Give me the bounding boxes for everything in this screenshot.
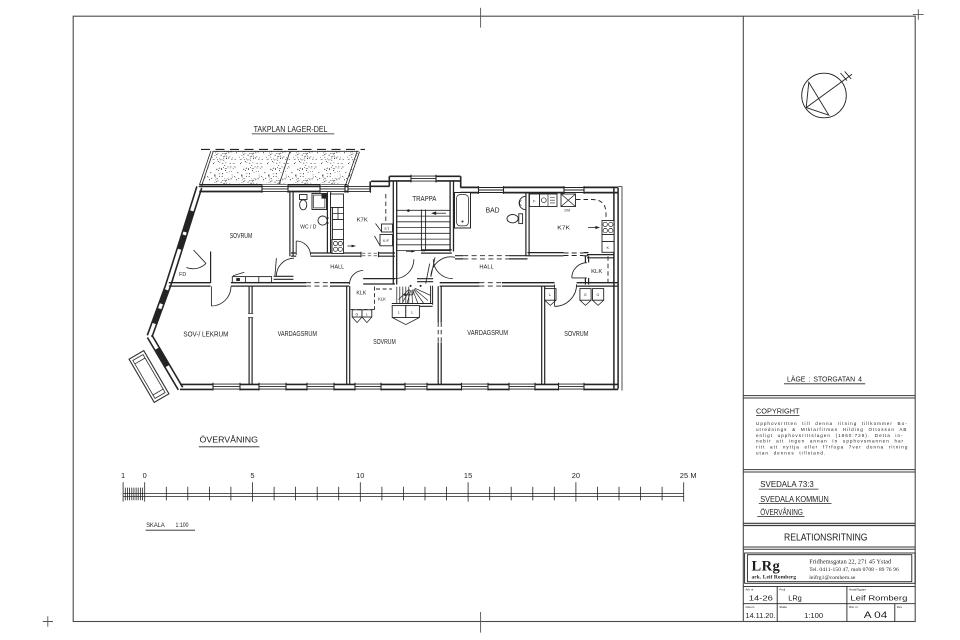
svg-text:20: 20 [572,471,580,480]
svg-text:RELATIONSRITNING: RELATIONSRITNING [784,532,868,543]
svg-text:HALL: HALL [330,264,344,270]
svg-text:KLK: KLK [591,269,603,275]
svg-text:Tel. 0411-150 47, mob 0708 - 8: Tel. 0411-150 47, mob 0708 - 89 76 96 [809,567,899,573]
svg-text:UpphovsrItten till denna ritni: UpphovsrItten till denna ritning tillkom… [756,421,908,426]
svg-text:Fridhemsgatan 22, 271 45 Ysta: Fridhemsgatan 22, 271 45 Ystad [809,559,892,566]
svg-text:K7K: K7K [357,218,368,224]
svg-text:K7K: K7K [557,225,570,231]
svg-text:Datum: Datum [746,605,755,609]
svg-text:ST: ST [384,227,390,231]
svg-text:10: 10 [356,471,364,480]
svg-text:nebIr att ingen annan In uppho: nebIr att ingen annan In upphovsmannen h… [756,439,904,444]
svg-text:25 M: 25 M [680,471,697,480]
svg-text:Skala: Skala [779,605,787,609]
svg-text:VARDAGSRUM: VARDAGSRUM [278,331,318,338]
svg-text:VARDAGSRUM: VARDAGSRUM [467,330,508,337]
svg-text:KLK: KLK [378,296,386,301]
svg-text:WC / D: WC / D [300,225,316,231]
svg-text:G: G [584,293,587,297]
svg-text:L: L [366,312,368,316]
svg-text:LRg: LRg [788,594,802,603]
svg-text:L: L [398,310,401,314]
svg-text:HALL: HALL [479,265,493,271]
svg-text:SVEDALA 73:3: SVEDALA 73:3 [760,480,814,489]
svg-text:Ritn nr: Ritn nr [849,605,858,609]
svg-text:Leif Romberg: Leif Romberg [850,593,907,602]
svg-text:Handl?ggare: Handl?ggare [849,588,867,592]
svg-text:SKALA: SKALA [146,522,165,529]
svg-text:G: G [355,312,358,316]
svg-text:15: 15 [464,471,472,480]
svg-text:LRg: LRg [752,558,781,574]
svg-text:TRAPPA: TRAPPA [412,196,436,203]
svg-text:ark. Leif Romberg: ark. Leif Romberg [752,575,797,581]
svg-text:A 04: A 04 [864,610,888,620]
svg-text:F: F [533,200,536,204]
svg-text:Projl: Projl [779,588,785,592]
svg-text:FD: FD [179,272,186,278]
svg-text:14-26: 14-26 [749,593,773,602]
svg-text:rItt att nyttja eller f7rfoga: rItt att nyttja eller f7rfoga 7ver denna… [756,445,908,450]
svg-text:ÖVERVÅNING: ÖVERVÅNING [200,435,259,445]
svg-text:5: 5 [250,471,254,480]
svg-text:1:100: 1:100 [804,611,823,620]
svg-text:L: L [549,293,552,297]
svg-text:1: 1 [121,471,125,480]
svg-text:ÖVERVÅNING: ÖVERVÅNING [760,508,803,517]
svg-text:LÄGE : STORGATAN 4: LÄGE : STORGATAN 4 [787,374,862,383]
svg-text:SOVRUM: SOVRUM [564,331,588,338]
svg-text:SOVRUM: SOVRUM [230,233,253,240]
svg-text:Rev: Rev [897,605,903,609]
svg-text:SOV-/ LEKRUM: SOV-/ LEKRUM [183,331,228,338]
svg-text:TAKPLAN LAGER-DEL: TAKPLAN LAGER-DEL [254,125,329,134]
svg-text:0: 0 [143,471,147,480]
svg-text:L: L [411,310,414,314]
svg-text:14.11.20.: 14.11.20. [746,611,776,620]
svg-text:K/F: K/F [383,239,389,243]
svg-text:enligt upphovsrIttslagen (1960: enligt upphovsrIttslagen (1960:729). Det… [756,433,904,438]
svg-text:KLK: KLK [356,291,366,297]
svg-text:1:100: 1:100 [176,522,189,529]
svg-text:BAD: BAD [486,207,500,214]
svg-text:DM: DM [564,209,570,213]
svg-text:Ark nr: Ark nr [746,588,754,592]
svg-text:utrednings & MIklarfirman Hild: utrednings & MIklarfirman Hilding Ottoss… [756,427,907,432]
svg-text:leifrg1@comhem.se: leifrg1@comhem.se [809,574,856,581]
svg-text:SOVRUM: SOVRUM [373,339,396,346]
svg-text:G: G [596,293,599,297]
svg-text:K: K [607,246,610,250]
svg-text:utan dennes tillstand.: utan dennes tillstand. [756,451,826,456]
svg-text:SVEDALA KOMMUN: SVEDALA KOMMUN [760,495,829,504]
svg-text:COPYRIGHT: COPYRIGHT [756,406,800,415]
